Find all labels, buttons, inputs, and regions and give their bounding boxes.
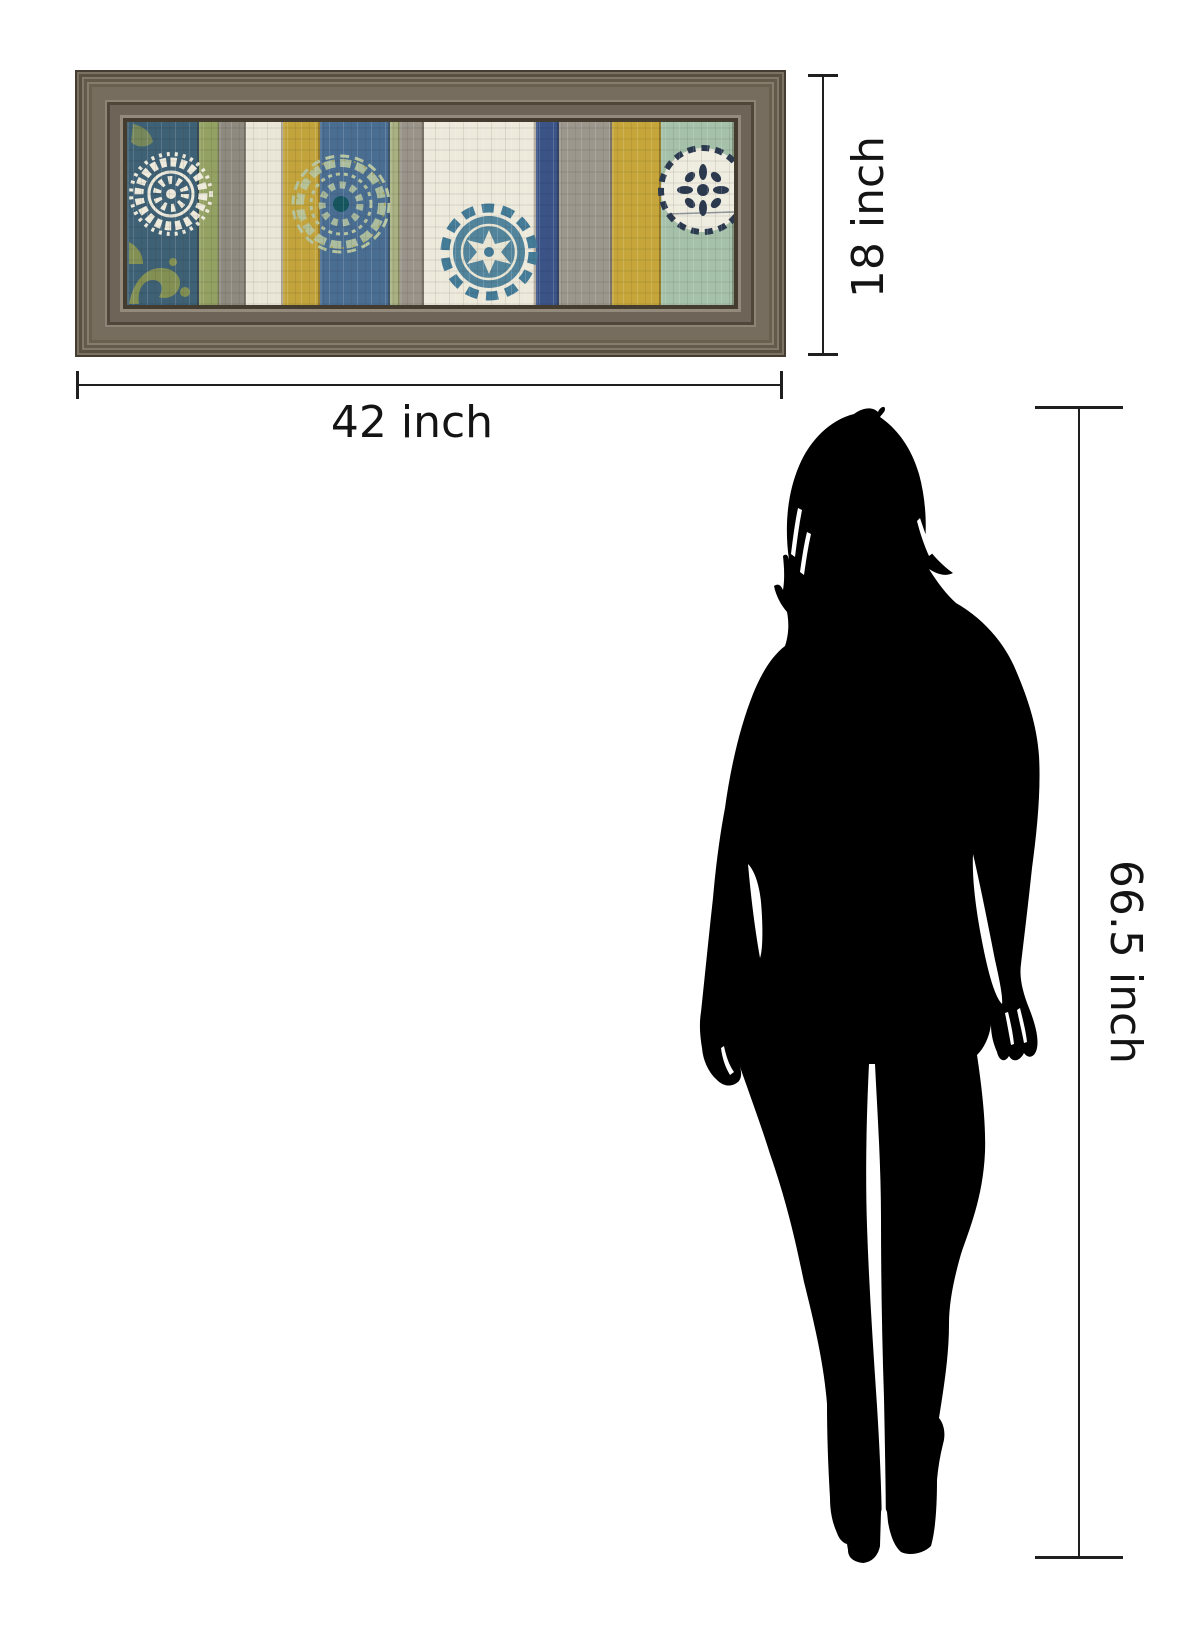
product-dimension-diagram: 18 inch 42 inch 66.5 inch (0, 0, 1200, 1638)
art-width-left-tick (76, 371, 79, 399)
art-height-bottom-tick (808, 353, 838, 356)
art-width-dimension-label: 42 inch (287, 399, 537, 447)
medallion-suzani-white (131, 154, 211, 234)
medallion-suzani-blue (445, 208, 533, 296)
picture-frame (75, 70, 786, 357)
medallion-navy-rosette (661, 148, 734, 232)
art-width-dimension-line (77, 384, 781, 386)
art-width-right-tick (780, 371, 783, 399)
art-height-top-tick (808, 74, 838, 77)
art-height-dimension-line (822, 75, 824, 355)
artwork-panel (127, 122, 734, 305)
art-height-dimension-label: 18 inch (845, 107, 893, 327)
person-height-top-tick (1035, 406, 1123, 409)
person-height-dimension-label: 66.5 inch (1101, 832, 1149, 1092)
medallion-celadon-lace (293, 156, 389, 252)
person-height-dimension-line (1078, 407, 1080, 1557)
person-silhouette (696, 406, 1048, 1566)
artwork-medallions (127, 122, 734, 305)
silhouette-body (700, 407, 1040, 1563)
person-height-bottom-tick (1035, 1556, 1123, 1559)
